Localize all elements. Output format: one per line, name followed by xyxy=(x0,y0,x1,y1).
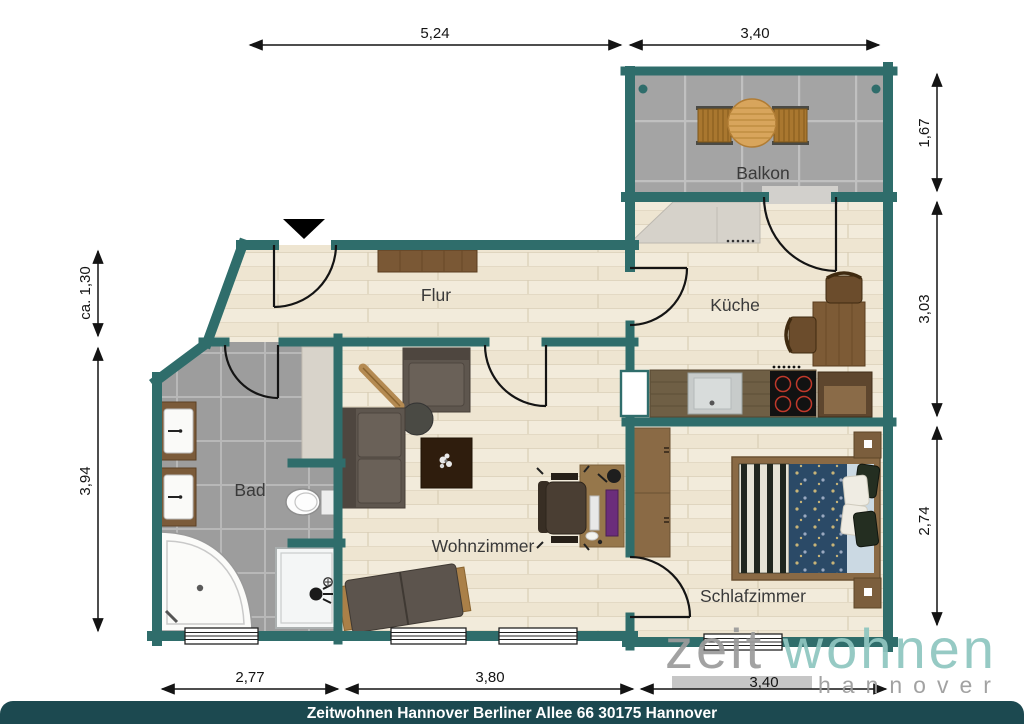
balcony-chair xyxy=(772,106,809,145)
room-label-kueche: Küche xyxy=(710,295,760,315)
svg-text:5,24: 5,24 xyxy=(420,25,449,42)
desk-lamp xyxy=(607,469,621,483)
dining-chair xyxy=(826,273,862,303)
washbasin xyxy=(160,402,196,460)
svg-text:1,67: 1,67 xyxy=(916,118,933,147)
svg-text:3,80: 3,80 xyxy=(475,669,504,686)
caption-text: Zeitwohnen Hannover Berliner Allee 66 30… xyxy=(307,705,717,722)
shower xyxy=(276,548,337,628)
kitchen-side-cabinet xyxy=(818,372,872,417)
window xyxy=(391,628,466,644)
striped-blanket xyxy=(739,464,789,573)
logo-word-gray: zeit xyxy=(665,617,764,680)
double-bed xyxy=(732,457,880,580)
coffee-table xyxy=(401,403,433,435)
nightstand xyxy=(854,578,881,608)
keyboard xyxy=(590,496,599,530)
svg-text:3,03: 3,03 xyxy=(916,294,933,323)
armchair xyxy=(403,348,470,412)
kitchen-counter xyxy=(650,366,816,417)
dimension-right-3: 2,74 xyxy=(916,427,937,625)
desk xyxy=(580,465,624,547)
logo-city: hannover xyxy=(818,672,1002,698)
logo-wordmark: zeit wohnen xyxy=(665,617,997,680)
toilet xyxy=(286,489,334,515)
floor-plan-page: Flur Küche Bad Wohnzimmer Schlafzimmer B… xyxy=(0,0,1024,724)
entrance-arrow-icon xyxy=(283,219,325,239)
dimension-bottom-1: 2,77 xyxy=(162,669,338,689)
caption-bar: Zeitwohnen Hannover Berliner Allee 66 30… xyxy=(0,701,1024,724)
monitor xyxy=(606,490,618,536)
bath-cabinet xyxy=(302,347,338,460)
room-label-flur: Flur xyxy=(421,285,451,305)
duct-niche xyxy=(621,371,648,416)
svg-text:3,40: 3,40 xyxy=(740,25,769,42)
floral-blanket xyxy=(789,464,847,573)
balcony-drain-icon xyxy=(639,85,648,94)
balcony-door-threshold xyxy=(762,186,838,204)
svg-text:3,94: 3,94 xyxy=(77,466,94,495)
dining-table xyxy=(813,302,865,366)
svg-text:2,77: 2,77 xyxy=(235,669,264,686)
wardrobe xyxy=(632,428,670,557)
window xyxy=(185,628,258,644)
nightstand xyxy=(854,432,881,458)
svg-text:ca. 1,30: ca. 1,30 xyxy=(77,266,94,319)
floor-plan: Flur Küche Bad Wohnzimmer Schlafzimmer B… xyxy=(0,0,1024,724)
stove xyxy=(770,371,816,416)
window xyxy=(499,628,577,644)
dining-chair xyxy=(786,317,816,353)
logo-word-teal: wohnen xyxy=(782,617,997,680)
balcony-drain-icon xyxy=(872,85,881,94)
dimension-top-2: 3,40 xyxy=(630,25,879,45)
rug-with-plant xyxy=(421,438,472,488)
hall-furniture xyxy=(378,250,477,272)
dimension-left-2: 3,94 xyxy=(77,348,98,631)
dimension-left-1: ca. 1,30 xyxy=(77,251,98,336)
balcony-table xyxy=(728,99,776,147)
dimension-right-1: 1,67 xyxy=(916,74,937,191)
room-label-bad: Bad xyxy=(234,480,265,500)
sofa xyxy=(342,408,405,508)
dimension-bottom-2: 3,80 xyxy=(346,669,633,689)
room-label-wohnzimmer: Wohnzimmer xyxy=(432,536,535,556)
dimension-top-1: 5,24 xyxy=(250,25,621,45)
svg-text:2,74: 2,74 xyxy=(916,506,933,535)
dimension-right-2: 3,03 xyxy=(916,202,937,416)
room-label-balkon: Balkon xyxy=(736,163,790,183)
washbasin xyxy=(160,468,196,526)
room-label-schlafzimmer: Schlafzimmer xyxy=(700,586,806,606)
